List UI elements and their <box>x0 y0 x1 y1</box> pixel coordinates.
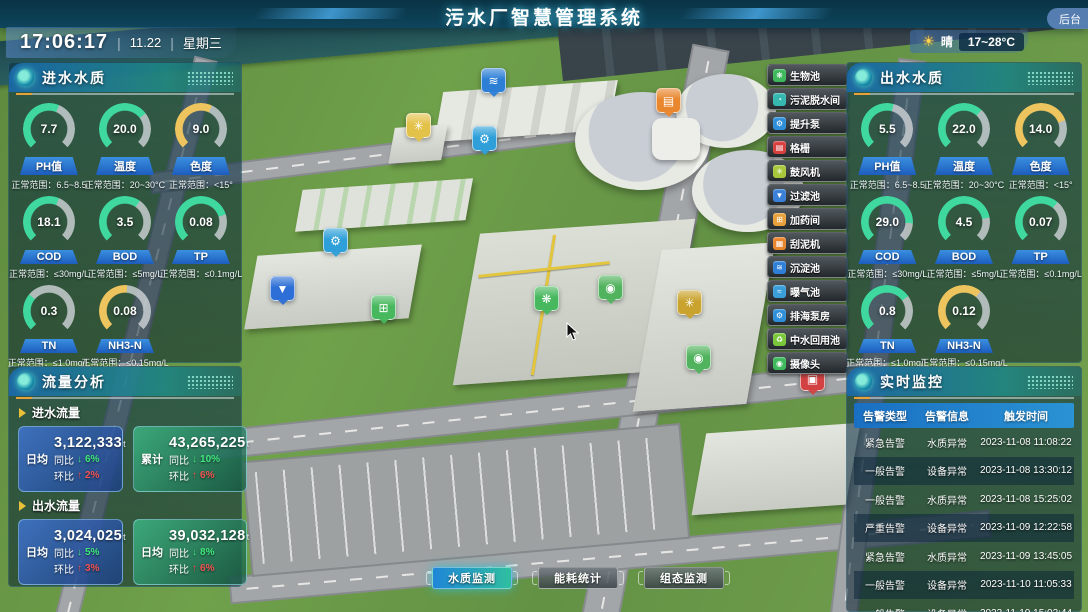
arrow-up-icon: ↑ <box>77 563 82 574</box>
flow-value: 43,265,225t <box>169 435 249 451</box>
weekday: 星期三 <box>183 33 222 52</box>
arrow-up-icon: ↑ <box>192 563 197 574</box>
inlet-flow-section-label: 进水流量 <box>19 404 241 421</box>
gauge-bod: 3.5 BOD 正常范围：≤5mg/L <box>87 196 163 280</box>
gauge-grid: 7.7 PH值 正常范围：6.5~8.5 20.0 温度 正常范围：20~30°… <box>9 99 241 374</box>
building <box>692 423 861 515</box>
sedimentation-icon: ≋ <box>773 261 786 274</box>
facility-button-sedimentation[interactable]: ≋沉淀池 <box>767 256 848 278</box>
gauge-label: TP <box>172 250 230 264</box>
flow-value: 39,032,128t <box>169 528 249 544</box>
triangle-icon <box>19 408 26 418</box>
flow-card-daily-2: 日均 39,032,128t 同比↓8% 环比↑6% <box>133 519 246 585</box>
header-underline <box>16 397 234 399</box>
facility-button-sludge-dewatering[interactable]: ◔污泥脱水间 <box>767 88 848 110</box>
outlet-flow-cards: 日均 3,024,025t 同比↓5% 环比↑3% 日均 39,032,128t… <box>9 519 241 585</box>
gauge-range: 正常范围：<15° <box>1009 178 1073 191</box>
dots-decoration <box>1027 375 1073 389</box>
datetime-bar: 17:06:17 | 11.22 | 星期三 <box>6 27 236 58</box>
gauge-range: 正常范围：≤0.1mg/L <box>999 267 1081 280</box>
sea-discharge-pump-icon: ⚙ <box>773 309 786 322</box>
gauge-value: 0.3 <box>23 285 75 337</box>
table-row[interactable]: 一般告警设备异常2023-11-10 15:02:44 <box>854 599 1074 612</box>
mom-row: 环比↑3% <box>54 561 126 576</box>
yoy-row: 同比↓10% <box>169 452 249 467</box>
panel-orb-icon <box>17 69 34 86</box>
bottom-tab-bar: 水质监测 能耗统计 组态监测 <box>432 567 724 589</box>
gauge-range: 正常范围：≤30mg/L <box>9 267 89 280</box>
panel-header: 进水水质 <box>9 63 241 92</box>
gauge-value: 0.12 <box>938 285 990 337</box>
arrow-up-icon: ↑ <box>77 470 82 481</box>
facility-button-aeration[interactable]: ≈曝气池 <box>767 280 848 302</box>
camera-icon: ◉ <box>773 357 786 370</box>
gauge-range: 正常范围：≤0.1mg/L <box>160 267 242 280</box>
gauge-range: 正常范围：20~30°C <box>924 178 1004 191</box>
panel-title: 出水水质 <box>880 68 944 88</box>
facility-button-filter-pool[interactable]: ▼过滤池 <box>767 184 848 206</box>
temperature-range: 17~28°C <box>959 33 1024 51</box>
panel-orb-icon <box>855 69 872 86</box>
bio-pool-icon: ❋ <box>773 69 786 82</box>
gauge-value: 0.07 <box>1015 196 1067 248</box>
weather-condition: 晴 <box>941 33 953 50</box>
table-row[interactable]: 一般告警设备异常2023-11-10 11:05:33 <box>854 571 1074 600</box>
gauge-label: NH3-N <box>935 339 993 353</box>
outlet-flow-section-label: 出水流量 <box>19 497 241 514</box>
panel-header: 出水水质 <box>847 63 1081 92</box>
facility-button-bio-pool[interactable]: ❋生物池 <box>767 64 848 86</box>
dosing-room-icon: ⊞ <box>773 213 786 226</box>
arrow-down-icon: ↓ <box>192 547 197 558</box>
panel-header: 实时监控 <box>847 367 1081 396</box>
alarm-table-header: 告警类型 告警信息 触发时间 <box>854 403 1074 428</box>
gauge-value: 0.08 <box>175 196 227 248</box>
gauge-label: COD <box>20 250 78 264</box>
gauge-bod: 4.5 BOD 正常范围：≤5mg/L <box>926 196 1003 280</box>
header-underline <box>16 93 234 95</box>
map-marker-filter-pool[interactable]: ▼ <box>270 276 295 301</box>
facility-button-bar-screen[interactable]: ▤格栅 <box>767 136 848 158</box>
gauge-nh3n: 0.12 NH3-N 正常范围：≤0.15mg/L <box>926 285 1003 369</box>
gauge-value: 3.5 <box>99 196 151 248</box>
mouse-cursor <box>566 322 580 342</box>
inlet-quality-panel: 进水水质 7.7 PH值 正常范围：6.5~8.5 20.0 温度 正常范围：2… <box>8 62 242 363</box>
facility-button-reclaimed-water[interactable]: ♻中水回用池 <box>767 328 848 350</box>
gauge-range: 正常范围：20~30°C <box>85 178 165 191</box>
gauge-temperature: 22.0 温度 正常范围：20~30°C <box>926 103 1003 191</box>
alarm-table: 告警类型 告警信息 触发时间 紧急告警水质异常2023-11-08 11:08:… <box>854 403 1074 612</box>
arrow-down-icon: ↓ <box>77 547 82 558</box>
lift-pump-icon: ⚙ <box>773 117 786 130</box>
gauge-tn: 0.3 TN 正常范围：≤1.0mg/L <box>11 285 87 369</box>
gauge-chroma: 9.0 色度 正常范围：<15° <box>163 103 239 191</box>
panel-header: 流量分析 <box>9 367 241 396</box>
page-title: 污水厂智慧管理系统 <box>0 3 1088 30</box>
flow-card-total: 累计 43,265,225t 同比↓10% 环比↑6% <box>133 426 246 492</box>
mom-row: 环比↑2% <box>54 468 126 483</box>
gauge-label: PH值 <box>858 157 916 175</box>
inlet-flow-cards: 日均 3,122,333t 同比↓6% 环比↑2% 累计 43,265,225t… <box>9 426 241 492</box>
gauge-label: BOD <box>96 250 154 264</box>
arrow-down-icon: ↓ <box>192 454 197 465</box>
gauge-tp: 0.07 TP 正常范围：≤0.1mg/L <box>1002 196 1079 280</box>
outlet-quality-panel: 出水水质 5.5 PH值 正常范围：6.5~8.5 22.0 温度 正常范围：2… <box>846 62 1082 363</box>
weather-widget: ☀ 晴 17~28°C <box>910 30 1028 53</box>
gauge-value: 4.5 <box>938 196 990 248</box>
clock-time: 17:06:17 <box>20 31 108 54</box>
map-marker-bar-screen[interactable]: ▤ <box>656 88 681 113</box>
scraper-icon: ▦ <box>773 237 786 250</box>
header-underline <box>854 397 1074 399</box>
gauge-value: 20.0 <box>99 103 151 155</box>
gauge-label: TN <box>20 339 78 353</box>
facility-button-blower[interactable]: ✳鼓风机 <box>767 160 848 182</box>
gauge-label: COD <box>858 250 916 264</box>
gauge-cod: 18.1 COD 正常范围：≤30mg/L <box>11 196 87 280</box>
gauge-value: 22.0 <box>938 103 990 155</box>
gauge-ph: 7.7 PH值 正常范围：6.5~8.5 <box>11 103 87 191</box>
gauge-label: 色度 <box>1012 157 1070 175</box>
facility-menu: ❋生物池 ◔污泥脱水间 ⚙提升泵 ▤格栅 ✳鼓风机 ▼过滤池 ⊞加药间 ▦刮泥机… <box>767 64 848 374</box>
tank-center-building <box>652 118 700 160</box>
tab-water-quality-monitoring[interactable]: 水质监测 <box>432 567 512 589</box>
mom-row: 环比↑6% <box>169 468 249 483</box>
date: 11.22 <box>130 35 162 50</box>
separator: | <box>117 35 121 51</box>
table-row[interactable]: 一般告警设备异常2023-11-08 13:30:12 <box>854 457 1074 486</box>
gauge-range: 正常范围：6.5~8.5 <box>11 178 86 191</box>
gauge-range: 正常范围：≤5mg/L <box>927 267 1002 280</box>
gauge-value: 0.8 <box>861 285 913 337</box>
table-row[interactable]: 严重告警设备异常2023-11-09 12:22:58 <box>854 514 1074 543</box>
gauge-ph: 5.5 PH值 正常范围：6.5~8.5 <box>849 103 926 191</box>
tab-energy-statistics[interactable]: 能耗统计 <box>538 567 618 589</box>
map-marker-bio-pool[interactable]: ❋ <box>534 286 559 311</box>
mom-row: 环比↑6% <box>169 561 249 576</box>
facility-button-camera[interactable]: ◉摄像头 <box>767 352 848 374</box>
tab-configuration-monitoring[interactable]: 组态监测 <box>644 567 724 589</box>
sludge-dewatering-icon: ◔ <box>773 93 786 106</box>
dots-decoration <box>187 375 233 389</box>
arrow-down-icon: ↓ <box>77 454 82 465</box>
gauge-label: TN <box>858 339 916 353</box>
dots-decoration <box>1027 71 1073 85</box>
flow-value: 3,024,025t <box>54 528 126 544</box>
map-marker-lift-pump-2[interactable]: ⚙ <box>323 228 348 253</box>
map-marker-blower-1[interactable]: ✳ <box>406 113 431 138</box>
reclaimed-water-icon: ♻ <box>773 333 786 346</box>
facility-button-lift-pump[interactable]: ⚙提升泵 <box>767 112 848 134</box>
table-row[interactable]: 一般告警水质异常2023-11-08 15:25:02 <box>854 485 1074 514</box>
gauge-value: 14.0 <box>1015 103 1067 155</box>
gauge-temperature: 20.0 温度 正常范围：20~30°C <box>87 103 163 191</box>
flow-card-daily: 日均 3,024,025t 同比↓5% 环比↑3% <box>18 519 123 585</box>
gauge-chroma: 14.0 色度 正常范围：<15° <box>1002 103 1079 191</box>
gauge-range: 正常范围：6.5~8.5 <box>850 178 925 191</box>
sun-icon: ☀ <box>922 33 935 50</box>
gauge-value: 18.1 <box>23 196 75 248</box>
map-marker-lift-pump-1[interactable]: ⚙ <box>472 126 497 151</box>
blower-icon: ✳ <box>773 165 786 178</box>
gauge-range: 正常范围：≤30mg/L <box>847 267 927 280</box>
gauge-label: TP <box>1012 250 1070 264</box>
triangle-icon <box>19 501 26 511</box>
gauge-label: 温度 <box>935 157 993 175</box>
gauge-range: 正常范围：≤5mg/L <box>87 267 162 280</box>
facility-button-scraper[interactable]: ▦刮泥机 <box>767 232 848 254</box>
header-underline <box>854 93 1074 95</box>
table-row[interactable]: 紧急告警水质异常2023-11-09 13:45:05 <box>854 542 1074 571</box>
flow-value: 3,122,333t <box>54 435 126 451</box>
table-row[interactable]: 紧急告警水质异常2023-11-08 11:08:22 <box>854 428 1074 457</box>
gauge-tn: 0.8 TN 正常范围：≤1.0mg/L <box>849 285 926 369</box>
map-marker-dosing-room[interactable]: ⊞ <box>371 295 396 320</box>
map-marker-blower-2[interactable]: ✳ <box>677 290 702 315</box>
panel-title: 流量分析 <box>42 372 106 392</box>
facility-button-sea-discharge-pump[interactable]: ⚙排海泵房 <box>767 304 848 326</box>
bar-screen-icon: ▤ <box>773 141 786 154</box>
map-marker-sedimentation[interactable]: ≋ <box>481 68 506 93</box>
gauge-value: 5.5 <box>861 103 913 155</box>
panel-title: 实时监控 <box>880 372 944 392</box>
gauge-label: 温度 <box>96 157 154 175</box>
yoy-row: 同比↓5% <box>54 545 126 560</box>
gauge-grid: 5.5 PH值 正常范围：6.5~8.5 22.0 温度 正常范围：20~30°… <box>847 99 1081 374</box>
gauge-label: 色度 <box>172 157 230 175</box>
gauge-range: 正常范围：<15° <box>169 178 233 191</box>
panel-title: 进水水质 <box>42 68 106 88</box>
filter-pool-icon: ▼ <box>773 189 786 202</box>
gauge-value: 9.0 <box>175 103 227 155</box>
gauge-cod: 29.0 COD 正常范围：≤30mg/L <box>849 196 926 280</box>
gauge-label: PH值 <box>20 157 78 175</box>
backstage-button[interactable]: 后台 <box>1047 8 1088 29</box>
flow-card-daily: 日均 3,122,333t 同比↓6% 环比↑2% <box>18 426 123 492</box>
yoy-row: 同比↓8% <box>169 545 249 560</box>
gauge-tp: 0.08 TP 正常范围：≤0.1mg/L <box>163 196 239 280</box>
yoy-row: 同比↓6% <box>54 452 126 467</box>
map-marker-camera-1[interactable]: ◉ <box>598 275 623 300</box>
map-marker-camera-2[interactable]: ◉ <box>686 345 711 370</box>
arrow-up-icon: ↑ <box>192 470 197 481</box>
realtime-monitoring-panel: 实时监控 告警类型 告警信息 触发时间 紧急告警水质异常2023-11-08 1… <box>846 366 1082 612</box>
dots-decoration <box>187 71 233 85</box>
gauge-value: 29.0 <box>861 196 913 248</box>
panel-orb-icon <box>855 373 872 390</box>
flow-analysis-panel: 流量分析 进水流量 日均 3,122,333t 同比↓6% 环比↑2% 累计 4… <box>8 366 242 587</box>
panel-orb-icon <box>17 373 34 390</box>
facility-button-dosing-room[interactable]: ⊞加药间 <box>767 208 848 230</box>
gauge-value: 0.08 <box>99 285 151 337</box>
gauge-label: BOD <box>935 250 993 264</box>
gauge-value: 7.7 <box>23 103 75 155</box>
top-header-bar: 污水厂智慧管理系统 <box>0 0 1088 28</box>
gauge-nh3n: 0.08 NH3-N 正常范围：≤0.15mg/L <box>87 285 163 369</box>
gauge-label: NH3-N <box>96 339 154 353</box>
separator: | <box>170 35 174 51</box>
aeration-icon: ≈ <box>773 285 786 298</box>
